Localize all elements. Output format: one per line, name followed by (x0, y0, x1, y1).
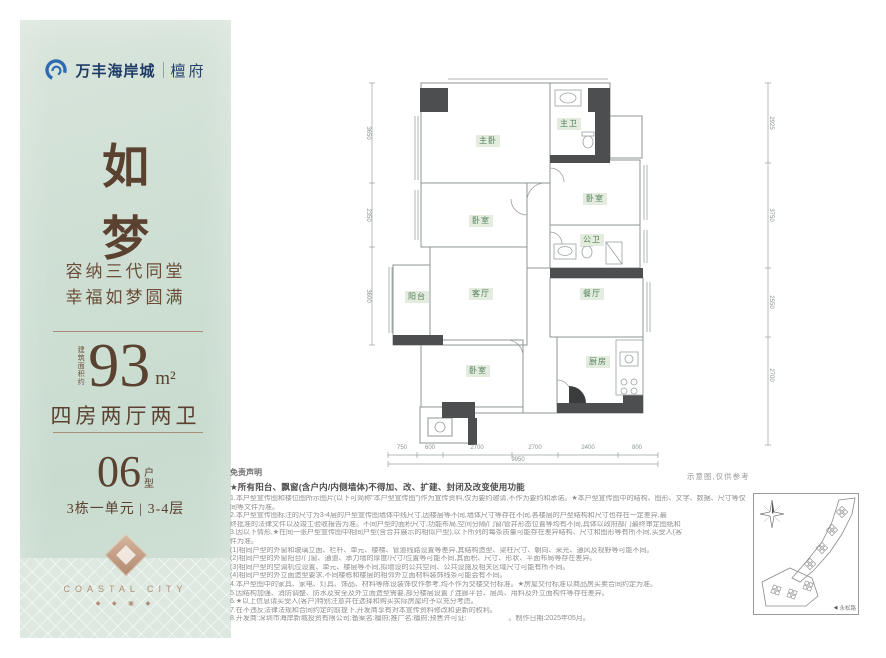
disclaimer-block: 免责声明 ★所有阳台、飘窗(含户内/内侧墙体)不得加、改、扩建、封闭及改变使用功… (230, 467, 745, 624)
disclaimer-line: 2.本户型宣传图标注的尺寸为3-4层的户型宣传图墙体中线尺寸,因楼层等不同,墙体… (230, 512, 745, 521)
poster-page: { "brand": { "name": "万丰海岸城", "sub": "檀府… (0, 0, 886, 658)
disclaimer-headline: ★所有阳台、飘窗(含户内/内侧墙体)不得加、改、扩建、封闭及改变使用功能 (230, 481, 745, 493)
diamond-logo-inner (116, 545, 136, 565)
dimension-label: 3750 (768, 208, 774, 221)
area-unit: m² (155, 368, 175, 390)
disclaimer-line: 6.★以上信息请买受人(客户)特别注意并在选择和购买实际房屋时予以充分考虑。 (230, 598, 745, 607)
disclaimer-title: 免责声明 (230, 467, 745, 478)
unit-row: 06 户 型 (20, 452, 231, 492)
dimension-label: 2700 (470, 445, 483, 451)
layout-text: 四房两厅两卫 (20, 400, 231, 430)
room-label-dining-room: 餐厅 (580, 288, 604, 300)
siteplan-drawing (754, 494, 858, 614)
divider-line-bottom (53, 432, 203, 433)
unit-suffix-bottom: 型 (144, 479, 154, 490)
room-label-master-bath: 主卫 (557, 118, 581, 130)
dimension-label: 800 (632, 445, 642, 451)
disclaimer-line: 件为准。 (230, 538, 745, 547)
road-direction-icon: ◀ (834, 605, 838, 611)
room-label-bedroom-middle: 卧室 (469, 215, 493, 227)
room-label-bedroom-bottom: 卧室 (466, 365, 490, 377)
room-label-master-bedroom: 主卧 (476, 135, 500, 147)
room-label-kitchen: 厨房 (586, 356, 610, 368)
ornament-icons: ◆ ◆ ▣ ◆ (20, 600, 231, 607)
area-value: 93 (88, 338, 150, 394)
main-title-char-1: 如 (20, 132, 231, 204)
slogan-line-2: 幸福如梦圆满 (20, 283, 231, 308)
dimension-total-label: 9950 (511, 457, 524, 463)
building-info: 3栋一单元 | 3-4层 (20, 498, 231, 518)
road-label-row: ◀ 永松路 (834, 604, 856, 612)
dimension-label: 600 (425, 445, 435, 451)
floorplan-fixtures (435, 90, 643, 432)
floorplan-drawing (358, 70, 778, 480)
disclaimer-line: 1.本户型宣传图和楼位图所示图片(以下可简称"本户型宣传图")作为宣传资料,仅为… (230, 495, 745, 504)
dimension-label: 2925 (768, 116, 774, 129)
area-row: 建筑面积约 93 m² (20, 338, 231, 394)
room-label-balcony: 阳台 (405, 291, 429, 303)
disclaimer-line: 5.因结构加强、消防调整、防水及安全及外立面造型需要,部分楼层设置了连廊平台、层… (230, 590, 745, 599)
sub-brand-name: 檀府 (171, 60, 207, 81)
slogan-line-1: 容纳三代同堂 (20, 257, 231, 282)
disclaimer-line: 终批准的法律文件以及竣工验收报告为准。不同户型的面积尺寸,功能布局,空间分隔/门… (230, 521, 745, 530)
disclaimer-line: (3)相同户型的空调机位设置、单元、楼层等不同,拟增设的公共空间、公共设施及相关… (230, 564, 745, 573)
room-label-bedroom-right: 卧室 (583, 193, 607, 205)
building-footprints (771, 506, 848, 599)
brand-panel: 万丰海岸城 檀府 如 梦 容纳三代同堂 幸福如梦圆满 建筑面积约 93 m² 四… (20, 20, 231, 638)
area-prefix-label: 建筑面积约 (75, 346, 85, 386)
siteplan-box: ◀ 永松路 (753, 493, 859, 615)
compass-icon (760, 500, 784, 528)
coastal-city-wordmark: COASTAL CITY (20, 584, 231, 594)
dimension-label: 2550 (768, 295, 774, 308)
disclaimer-line: 3.因以下情形,★在同一张户型宣传图中相同户型(含合并展示的相似户型),以下所列… (230, 529, 745, 538)
floorplan-doors (507, 168, 571, 394)
room-label-public-bath: 公卫 (580, 234, 604, 246)
dimension-label: 3650 (365, 126, 371, 139)
unit-type-label: 户 型 (144, 468, 154, 490)
entrance-door-icon (569, 386, 586, 403)
brand-logo-row: 万丰海岸城 檀府 (20, 58, 231, 82)
disclaimer-line: 8.开发商:深圳市海岸新城投资有限公司;备案名:檀府;推广名:檀府;预售许可证:… (230, 615, 745, 624)
dimension-label: 3600 (365, 289, 371, 302)
unit-number: 06 (97, 452, 141, 492)
dimension-label: 2700 (768, 368, 774, 381)
disclaimer-line: 4.本户型图中的家具、家电、灯具、饰品、材料等陈设装饰仅作参考,均不作为交楼交付… (230, 581, 745, 590)
dimension-label: 2400 (581, 445, 594, 451)
brand-name: 万丰海岸城 (75, 60, 155, 81)
wave-logo-icon (44, 58, 68, 82)
unit-suffix-top: 户 (144, 468, 154, 479)
dimension-label: 750 (397, 445, 407, 451)
disclaimer-line: (4)相同户型的外立面造型要求,不同楼栋和楼层的相邻外立面材料装饰线条可能会有不… (230, 572, 745, 581)
brand-divider (163, 62, 164, 78)
disclaimer-line: (2)相同户型的外窗阳台/门窗、通道、承力墙的厚度/尺寸/位置等可能不同,其面积… (230, 555, 745, 564)
dimension-label: 2350 (365, 208, 371, 221)
disclaimer-line: (1)相同户型的外窗和玻璃立面、栏杆、单元、楼梯、管道线路设置等差异,其结构造型… (230, 547, 745, 556)
disclaimer-line: 7.在不违反法律法规和合同约定的前提下,开发商享有对本宣传资料修改和更新的权利。 (230, 607, 745, 616)
main-title: 如 梦 (20, 132, 231, 276)
dimension-label: 2700 (528, 445, 541, 451)
road-label: 永松路 (839, 604, 856, 612)
room-label-living-room: 客厅 (469, 288, 493, 300)
disclaimer-line: 同等文件为准。 (230, 504, 745, 513)
